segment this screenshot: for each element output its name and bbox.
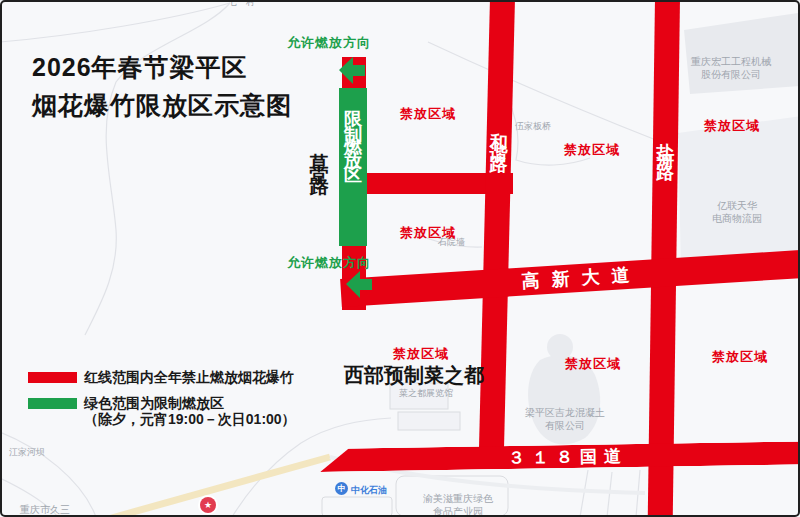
road-label-caotang: 草堂路 [306, 137, 332, 173]
prohibited-zone-label: 禁放区域 [400, 105, 456, 123]
page-title: 2026年春节梁平区 烟花爆竹限放区示意图 [32, 48, 292, 124]
map-canvas: 和谐路 盐河路 高新大道 ３１８国道 限制燃放区 2026年春节梁平区 烟花爆竹… [0, 0, 800, 517]
poi-zhonghua: 中化石油 [351, 484, 387, 497]
title-line1: 2026年春节梁平区 [32, 48, 292, 86]
district-slogan: 西部预制菜之都 [344, 362, 484, 389]
poi-jilong-line1: 梁平区吉龙混凝土 [503, 406, 627, 419]
poi-yilian-line2: 电商物流园 [677, 212, 797, 225]
poi-jiangjiaheba: 江家河坝 [9, 446, 45, 459]
restricted-zone-label: 限制燃放区 [341, 96, 365, 166]
poi-honggong: 重庆宏工工程机械 股份有限公司 [666, 55, 796, 81]
prohibited-zone-label: 禁放区域 [564, 141, 620, 159]
road-label-g318: ３１８国道 [508, 444, 628, 469]
poi-honggong-line1: 重庆宏工工程机械 [666, 55, 796, 68]
prohibited-zone-label: 禁放区域 [704, 117, 760, 135]
legend-green-note: （除夕，元宵19:00－次日01:00） [84, 411, 296, 429]
prohibited-zone-label: 禁放区域 [712, 348, 768, 366]
poi-yilian-line1: 亿联天华 [677, 199, 797, 212]
restricted-zone-strip: 限制燃放区 [339, 88, 367, 246]
prohibited-zone-label: 禁放区域 [565, 355, 621, 373]
poi-jilong-line2: 有限公司 [503, 419, 627, 432]
allowed-direction-label-bottom: 允许燃放方向 [287, 254, 371, 272]
road-label-gaoxin: 高新大道 [521, 262, 642, 293]
prohibited-zone-label: 禁放区域 [393, 345, 449, 363]
road-label-hexie: 和谐路 [487, 118, 512, 152]
legend-red-swatch [28, 372, 77, 383]
poi-wujiabanqiao: 伍家板桥 [515, 120, 551, 133]
prohibited-zone-label: 禁放区域 [400, 224, 456, 242]
poi-honggong-line2: 股份有限公司 [666, 68, 796, 81]
scenic-pin-icon: ★ [200, 497, 216, 513]
poi-qiyicun: 七一村 [228, 0, 255, 9]
poi-jiusan: 重庆市久三 [20, 503, 70, 517]
title-line2: 烟花爆竹限放区示意图 [32, 86, 292, 124]
poi-yilian: 亿联天华 电商物流园 [677, 199, 797, 225]
legend-red-text: 红线范围内全年禁止燃放烟花爆竹 [84, 369, 294, 387]
sinochem-icon: 中 [335, 482, 348, 495]
road-label-yanhe: 盐河路 [653, 128, 677, 158]
legend-green-swatch [28, 398, 77, 409]
poi-yumeizi-line2: 食品产业园 [403, 505, 513, 517]
poi-yumeizi-line1: 渝美滋重庆绿色 [403, 492, 513, 505]
poi-yumeizi: 渝美滋重庆绿色 食品产业园 [403, 492, 513, 517]
allowed-direction-label-top: 允许燃放方向 [287, 34, 371, 52]
poi-jilong: 梁平区吉龙混凝土 有限公司 [503, 406, 627, 432]
allowed-direction-arrow-top [339, 55, 365, 86]
allowed-direction-arrow-bottom [346, 269, 372, 300]
